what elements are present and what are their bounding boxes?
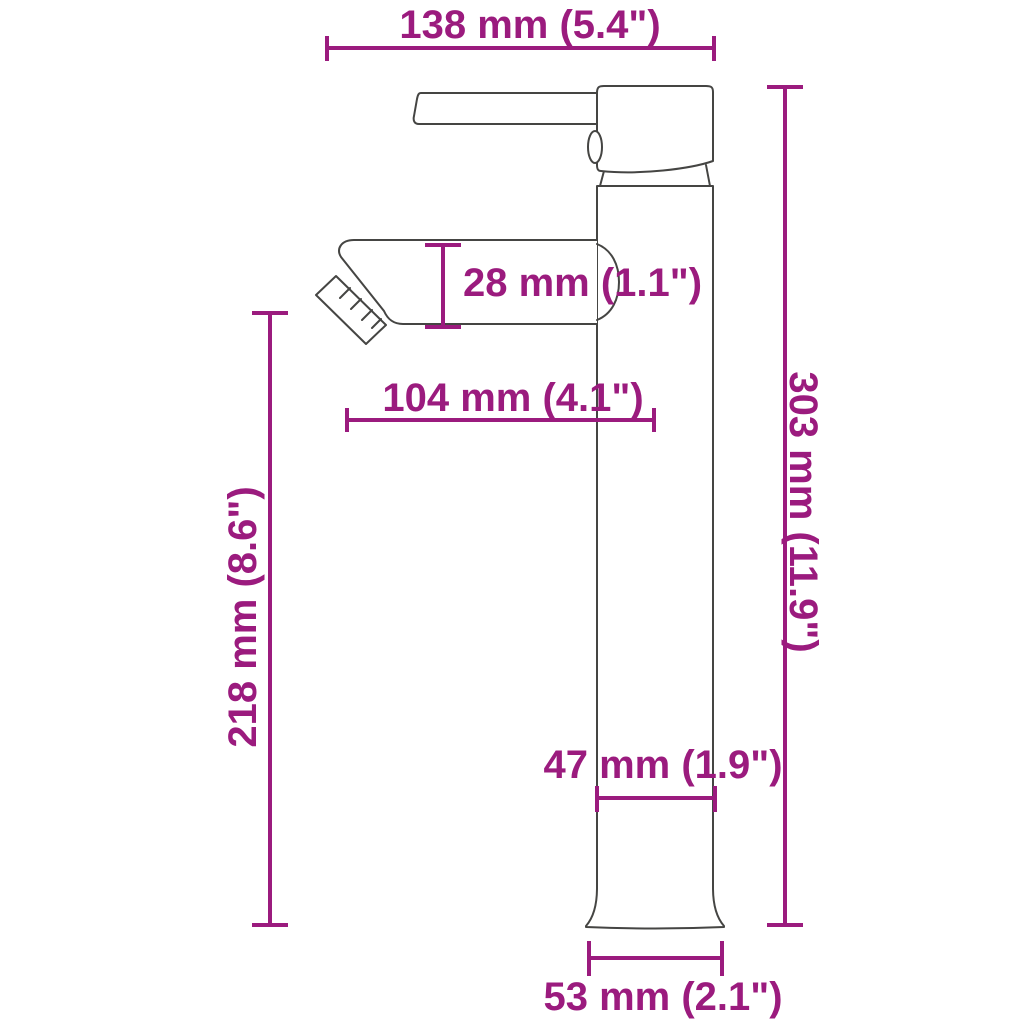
dim-label-top-width: 138 mm (5.4") — [399, 5, 660, 45]
handle-lever — [414, 93, 597, 124]
faucet-outline — [316, 86, 724, 929]
head-cap — [597, 86, 713, 172]
dim-label-outlet-height: 218 mm (8.6") — [223, 486, 263, 747]
dim-label-spout-reach: 104 mm (4.1") — [382, 378, 643, 418]
faucet-dimension-drawing — [0, 0, 1024, 1024]
dim-label-base-width: 53 mm (2.1") — [543, 977, 782, 1017]
dim-label-body-width: 47 mm (1.9") — [543, 745, 782, 785]
dim-label-total-height: 303 mm (11.9") — [783, 371, 823, 652]
diagram-canvas: 138 mm (5.4") 28 mm (1.1") 104 mm (4.1")… — [0, 0, 1024, 1024]
dimension-lines — [252, 36, 803, 976]
handle-joint — [588, 131, 602, 163]
dim-label-spout-height: 28 mm (1.1") — [463, 263, 702, 303]
dim-line-base-width — [589, 941, 722, 976]
